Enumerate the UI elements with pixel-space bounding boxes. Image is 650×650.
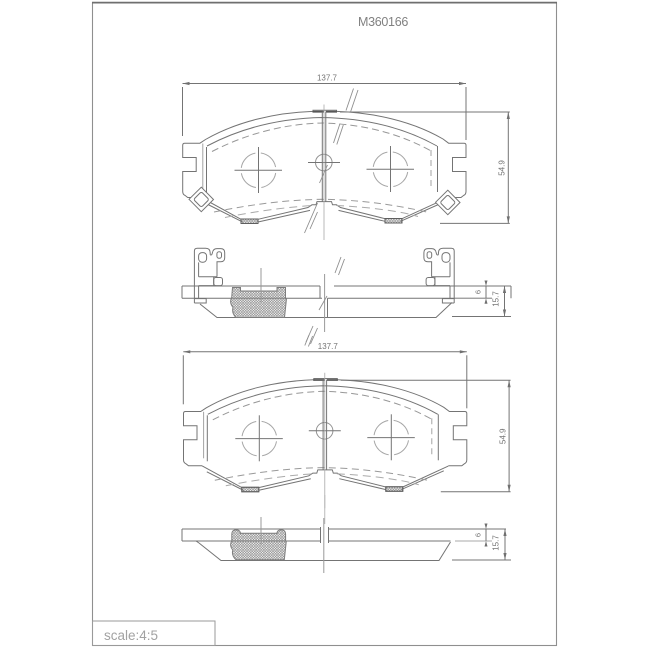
svg-text:6: 6: [474, 533, 483, 537]
svg-text:15.7: 15.7: [492, 291, 501, 307]
svg-text:15.7: 15.7: [492, 535, 501, 551]
svg-text:M360166: M360166: [358, 15, 408, 29]
svg-text:6: 6: [474, 290, 483, 294]
svg-text:scale:4:5: scale:4:5: [104, 628, 158, 643]
